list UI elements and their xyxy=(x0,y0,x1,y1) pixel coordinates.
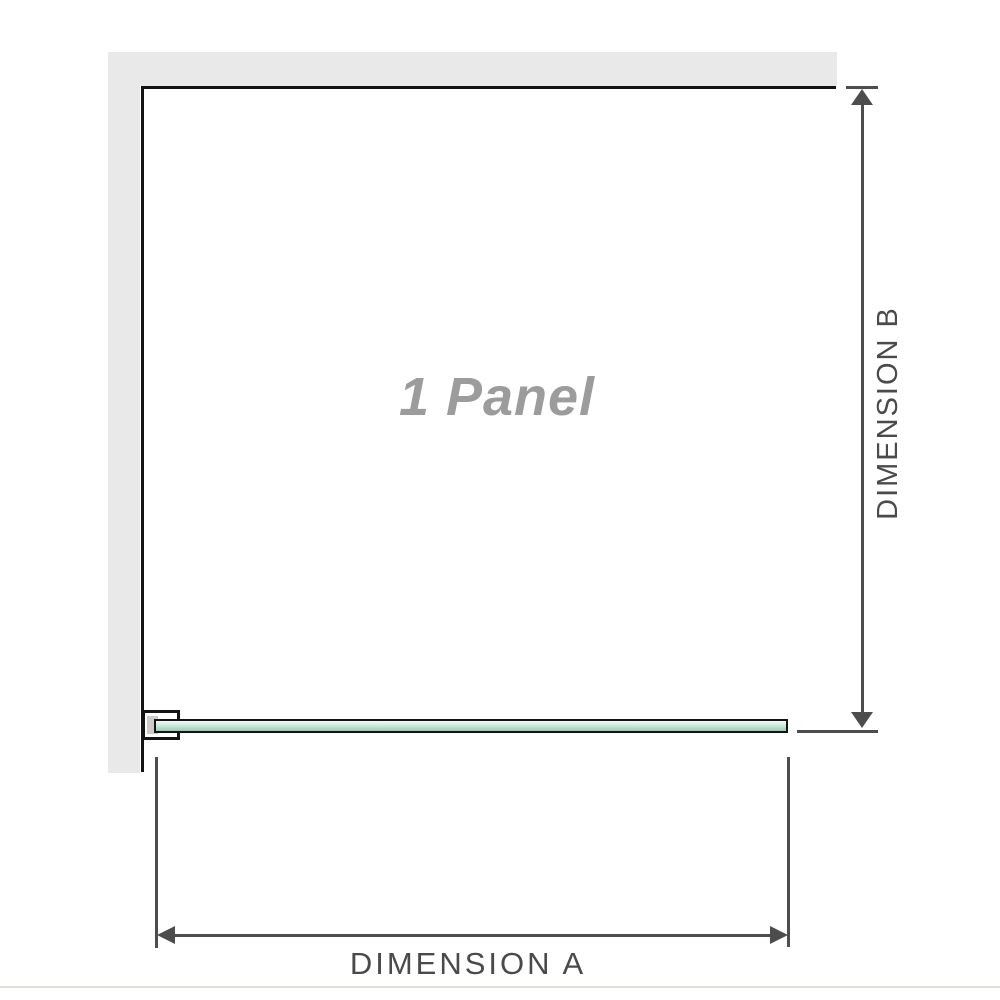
glass-panel xyxy=(154,719,788,733)
dimension-b-arrow-bottom-icon xyxy=(851,712,873,728)
panel-left-edge xyxy=(141,86,144,772)
panel-dimension-diagram: 1 Panel DIMENSION B DIMENSION A xyxy=(0,0,1000,1000)
bottom-divider-line xyxy=(0,986,1000,988)
dimension-a-label: DIMENSION A xyxy=(318,946,618,982)
dimension-a-arrow-right-icon xyxy=(770,926,788,944)
dimension-a-right-extension-line xyxy=(787,757,790,947)
dimension-a-left-extension-line xyxy=(155,757,158,948)
dimension-b-arrow-top-icon xyxy=(851,89,873,105)
dimension-a-line xyxy=(170,934,774,937)
panel-count-label: 1 Panel xyxy=(297,365,697,429)
wall-side-segment xyxy=(108,52,140,773)
dimension-b-line xyxy=(861,100,864,716)
dimension-b-bottom-tick xyxy=(797,730,878,733)
dimension-b-label: DIMENSION B xyxy=(872,293,904,533)
dimension-a-arrow-left-icon xyxy=(157,926,175,944)
panel-top-edge xyxy=(141,86,836,89)
wall-top-segment xyxy=(108,52,837,86)
